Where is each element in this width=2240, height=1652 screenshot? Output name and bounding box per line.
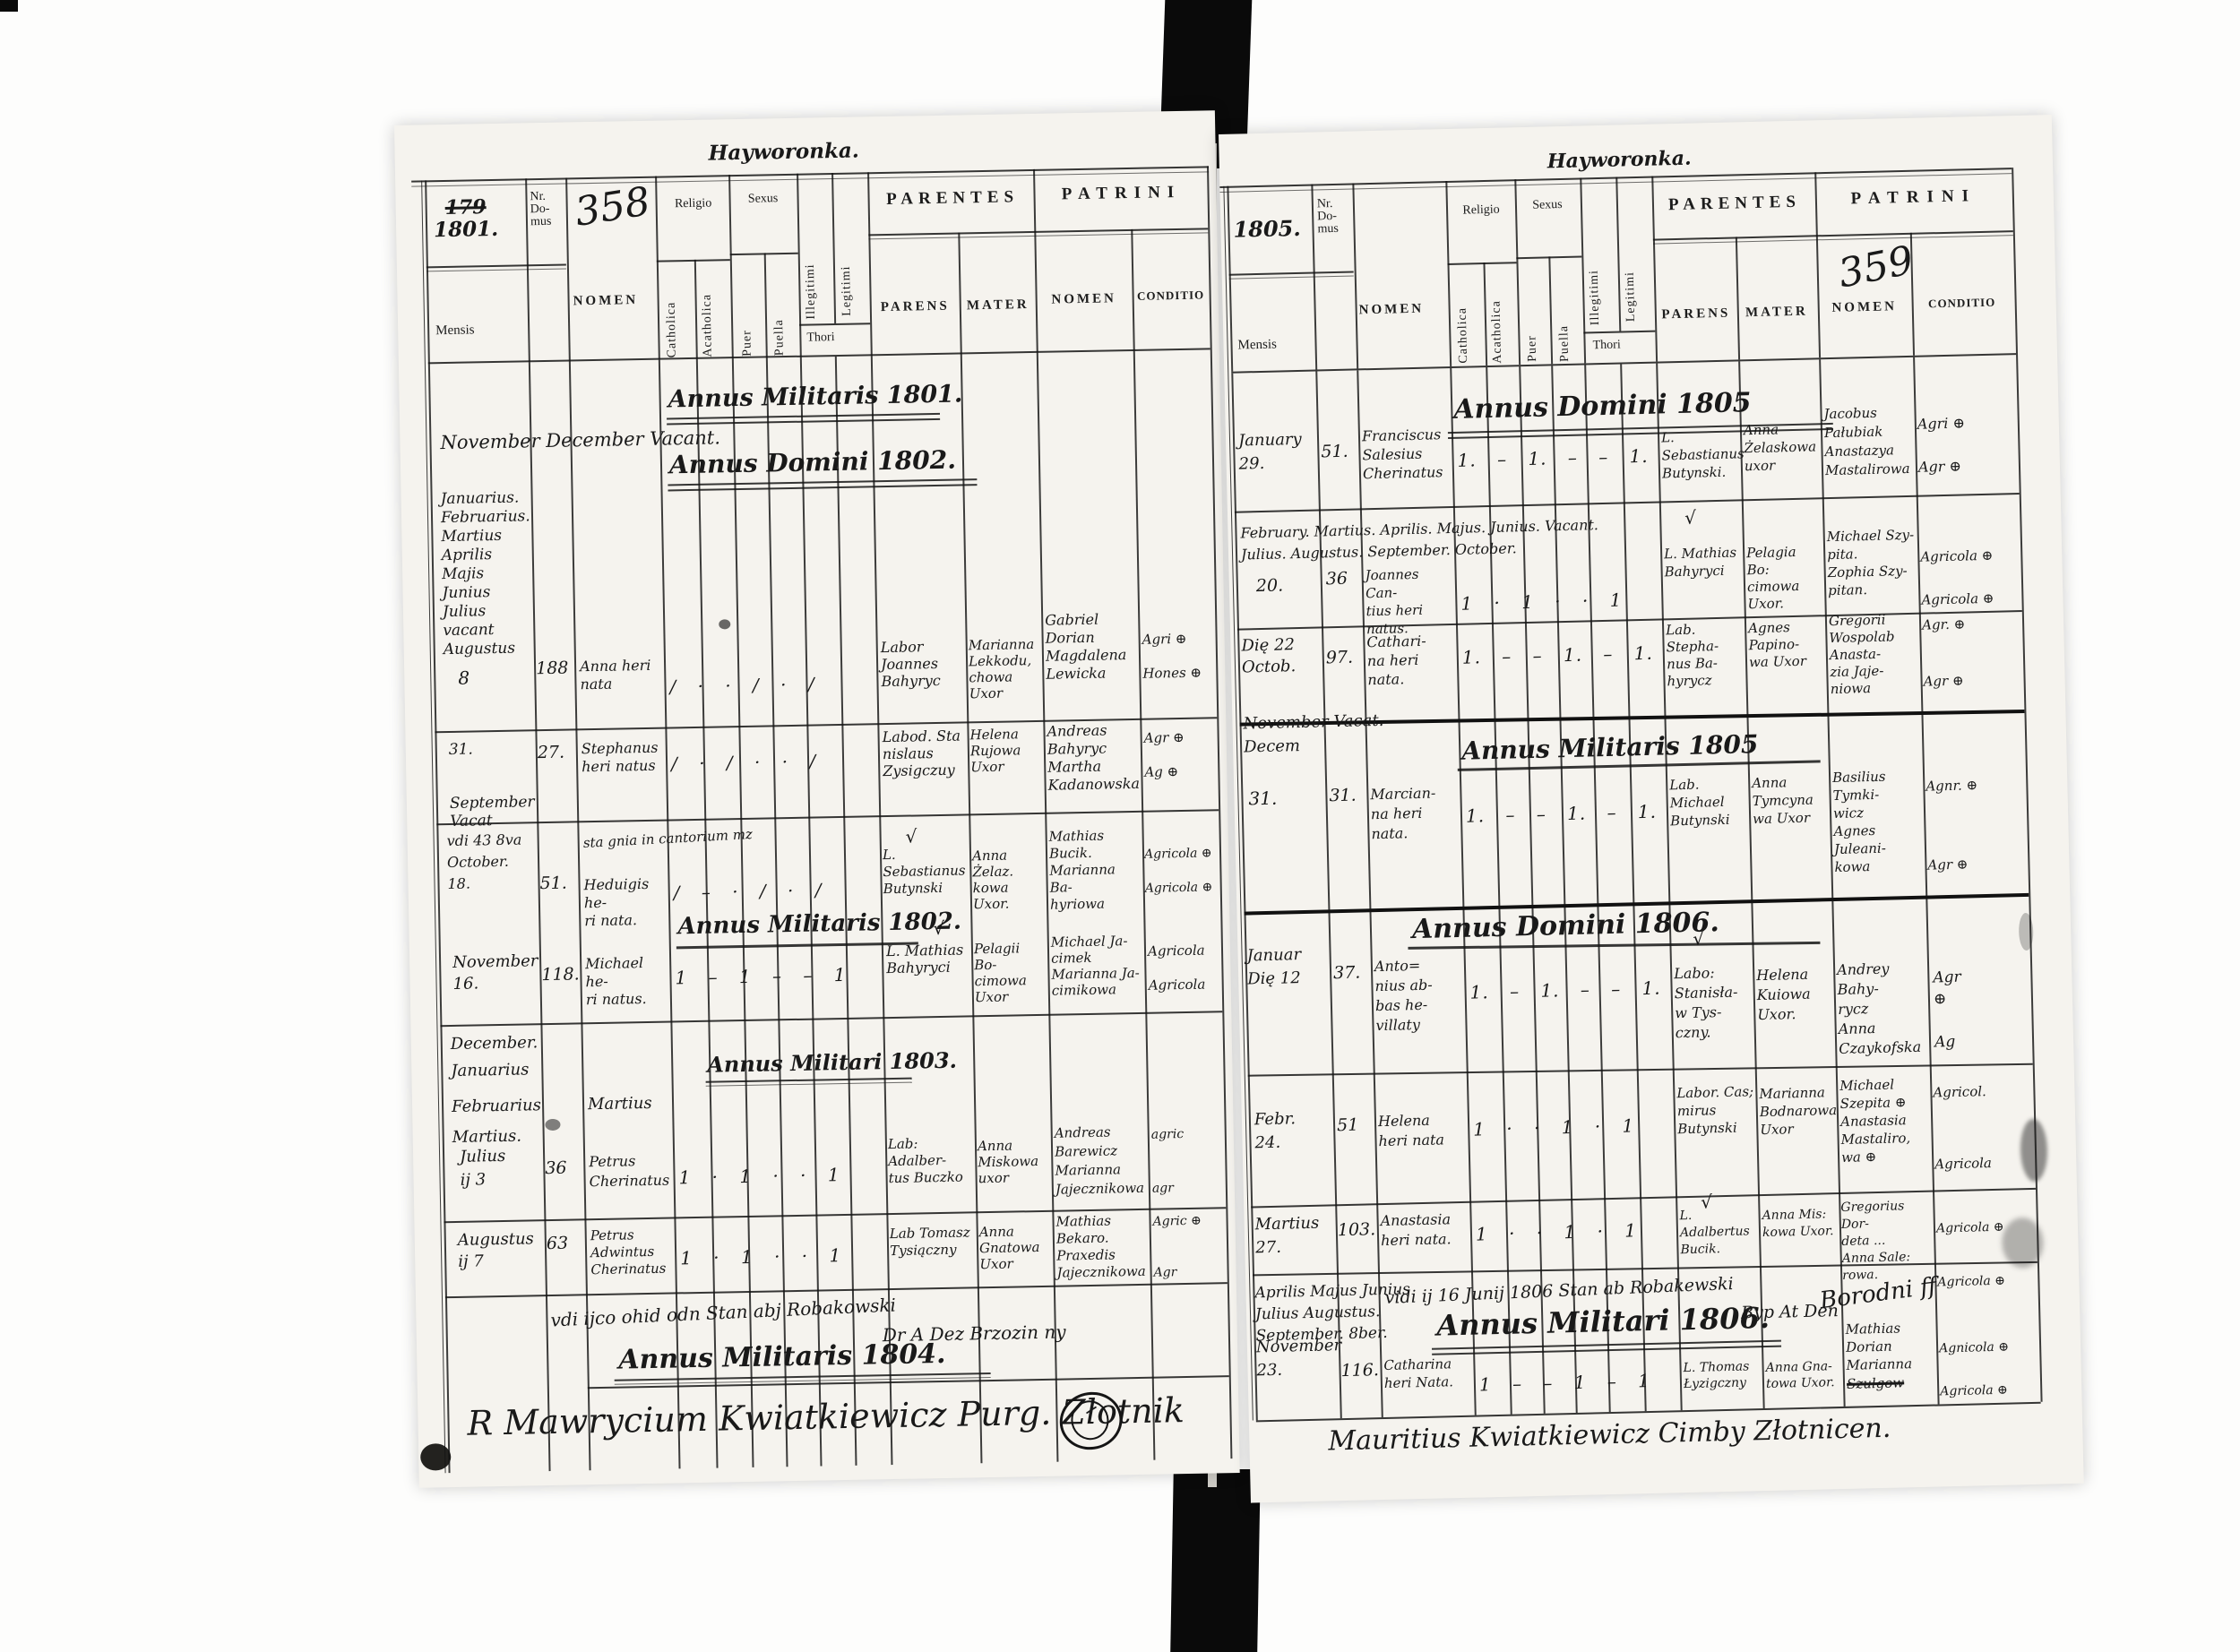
parens-header: PARENS <box>873 299 958 316</box>
entry-nomen: Anto= nius ab- bas he- villaty <box>1374 955 1464 1036</box>
check-mark: √ <box>933 917 944 939</box>
entry-patrini: Michael Szy- pita. Zophia Szy- pitan. <box>1827 526 1917 599</box>
month-list: Februarius <box>452 1096 541 1116</box>
page-number: 358 <box>572 178 653 236</box>
ink-stain <box>719 619 730 629</box>
entry-parens: L. Thomas Łyzigczny <box>1683 1358 1762 1392</box>
entry-parens: L. Sebastianus Butynski <box>883 845 970 898</box>
entry-patrini: Michael Ja- cimek Marianna Ja- cimikowa <box>1051 933 1143 999</box>
entry-parens: L. Mathias Bahyryci <box>1664 543 1744 581</box>
entry-ticks: ∕ · ∕ · · ∕ <box>671 749 877 774</box>
entry-patrini: Andrey Bahy- rycz Anna Czaykofska <box>1837 959 1927 1059</box>
puella-header: Puella <box>1556 295 1572 362</box>
entry-nomen: Anna heri nata <box>580 657 666 694</box>
entry-mater: Anna Miskowa uxor <box>978 1137 1050 1186</box>
grid-line <box>867 172 872 356</box>
conditio-header: CONDITIO <box>1132 288 1209 304</box>
entry-mensis: January 29. <box>1238 428 1315 477</box>
scan-corner-mark <box>0 0 18 12</box>
section-heading: Annus Domini 1802. <box>669 445 957 480</box>
patrini-header: PATRINI <box>1819 185 2009 210</box>
entry-conditio: Agr ⊕ Ag ⊕ <box>1144 728 1219 780</box>
grid-line <box>1651 176 1657 362</box>
acatholica-header: Acatholica <box>700 264 716 357</box>
section-heading: Annus Militari 1806. <box>1436 1301 1770 1343</box>
entry-conditio: Agric ⊕ Agr <box>1152 1212 1227 1281</box>
year-label: 1805. <box>1233 215 1301 243</box>
entry-patrini: Mathias Bekaro. Praxedis Jajecznikowa <box>1055 1212 1148 1282</box>
entry-mater: Marianna Lekkodu, chowa Uxor <box>969 636 1041 701</box>
patrini-nomen-header: NOMEN <box>1820 299 1909 316</box>
nomen-header: NOMEN <box>573 293 638 309</box>
section-heading: Annus Militaris 1804. <box>618 1338 946 1376</box>
entry-nomen: Cathari- na heri nata. <box>1366 631 1455 689</box>
section-heading: Annus Domini 1805 <box>1453 387 1752 426</box>
mater-header: MATER <box>1739 304 1814 321</box>
grid-line <box>440 1011 1222 1027</box>
heading-underline <box>667 418 940 426</box>
entry-conditio: Agricola ⊕ Agricola ⊕ <box>1144 845 1220 898</box>
entry-nomen: Petrus Adwintus Cherinatus <box>590 1226 676 1278</box>
entry-patrini: Mathias Bucik. Marianna Ba- hyriowa <box>1049 827 1142 914</box>
entry-ticks: 1. – – 1. – 1. <box>1466 800 1666 826</box>
month-list: December. Januarius <box>451 1029 539 1085</box>
illegitimi-header: Illegitimi <box>803 198 819 319</box>
scanned-register-spread: { "colors": {"ink": "#1c1c1c", "paper": … <box>0 0 2240 1652</box>
entry-ticks: ∕ – · ∕ · ∕ <box>674 878 880 903</box>
grid-line <box>1229 275 1354 279</box>
page-number: 359 <box>1834 237 1917 297</box>
book-spine-bottom <box>1170 1469 1261 1652</box>
entry-ticks: 1 – – 1 – 1 <box>1479 1369 1679 1395</box>
section-heading: Annus Domini 1806. <box>1412 907 1720 945</box>
entry-nomen: Marcian- na heri nata. <box>1370 783 1460 844</box>
thori-header: Thori <box>1592 338 1620 353</box>
entry-ticks: 1 – 1 – – 1 <box>675 963 881 988</box>
entry-nomen: Petrus Cherinatus <box>589 1150 675 1192</box>
entry-ticks: 1 · · 1 · 1 <box>1476 1218 1676 1244</box>
grid-line <box>1447 262 1516 265</box>
grid-line <box>428 348 1210 364</box>
entry-mensis: Martius 27. <box>1254 1211 1334 1260</box>
entry-patrini-struck: Szulgow <box>1847 1374 1905 1392</box>
entry-nr: 27. <box>538 743 565 763</box>
entry-patrini: Gregorii Wospolab Anasta- zia Jaje- niow… <box>1829 611 1918 698</box>
grid-line <box>425 180 429 364</box>
check-mark: √ <box>905 825 917 847</box>
grid-line <box>426 264 566 269</box>
struck-year: 179 <box>444 195 486 219</box>
entry-parens: Lab: Adalber- tus Buczko <box>888 1134 976 1187</box>
entry-mensis: 8 <box>458 667 470 689</box>
religio-header: Religio <box>661 196 726 211</box>
legitimi-header: Legitimi <box>839 200 855 316</box>
entry-nr: 51. <box>539 873 567 894</box>
section-heading: Annus Militaris 1802. <box>677 908 961 941</box>
parentes-header: PARENTES <box>874 187 1030 210</box>
entry-mater: Pelagia Bo: cimowa Uxor. <box>1746 543 1822 613</box>
entry-parens: Labor Joannes Bahyryc <box>881 637 967 690</box>
entry-ticks: 1 · · 1 · 1 <box>1473 1114 1673 1140</box>
entry-conditio: Agricol. Agricola <box>1933 1081 2029 1173</box>
entry-patrini: Gabriel Dorian Magdalena Lewicka <box>1045 610 1137 684</box>
grid-line <box>1580 177 1585 363</box>
grid-line <box>525 178 530 362</box>
entry-mater: Helena Rujowa Uxor <box>969 726 1042 775</box>
entry-mater: Anna Gnatowa Uxor <box>979 1223 1052 1272</box>
entry-patrini: Jacobus Pałubiak Anastazya Mastalirowa <box>1823 403 1913 480</box>
catholica-header: Catholica <box>1455 273 1471 363</box>
mensis-header: Mensis <box>1237 338 1277 354</box>
nr-domus-header: Nr. Do- mus <box>1317 198 1339 237</box>
grid-line <box>1548 256 1552 364</box>
entry-mater: Anna Gna- towa Uxor. <box>1765 1358 1839 1392</box>
entry-parens: Labo: Stanisła- w Tys- czny. <box>1674 962 1754 1043</box>
nr-domus-header: Nr. Do- mus <box>530 191 551 228</box>
entry-conditio: Agri ⊕ Hones ⊕ <box>1142 630 1216 682</box>
entry-nr: 118. <box>541 964 580 985</box>
entry-nr: 37. <box>1333 963 1361 984</box>
entry-ticks: ∕ · · ∕ · ∕ <box>669 672 875 697</box>
section-heading: Annus Militari 1803. <box>707 1047 957 1078</box>
ink-stain <box>2019 913 2034 951</box>
entry-nomen: Helena heri nata <box>1378 1110 1467 1151</box>
grid-line <box>958 232 961 354</box>
entry-mater: Anna Tymcyna wa Uxor <box>1752 772 1826 828</box>
patrini-nomen-header: NOMEN <box>1038 291 1131 308</box>
entry-nr: 51. <box>1321 442 1348 462</box>
heading-underline <box>706 1082 912 1087</box>
puer-header: Puer <box>740 294 755 357</box>
entry-ticks: 1 · 1 · · 1 <box>1460 589 1660 615</box>
entry-patrini: Michael Szepita ⊕ Anastasia Mastaliro, w… <box>1839 1075 1929 1166</box>
entry-conditio: Agri ⊕ Agr ⊕ <box>1917 411 2014 478</box>
entry-nomen: Catharina heri Nata. <box>1383 1355 1472 1392</box>
entry-nr: 103. <box>1338 1219 1376 1240</box>
thori-header: Thori <box>806 331 834 346</box>
entry-mensis: 31. <box>1248 787 1277 810</box>
entry-conditio: Agnicola ⊕ Agricola ⊕ <box>1939 1336 2036 1402</box>
entry-parens: L. Adalbertus Bucik. <box>1679 1206 1761 1259</box>
parentes-header: PARENTES <box>1658 192 1812 215</box>
illegitimi-header: Illegitimi <box>1586 204 1603 325</box>
grid-line <box>1615 177 1621 331</box>
entry-conditio: Agnr. ⊕ Agr ⊕ <box>1926 774 2023 874</box>
puer-header: Puer <box>1524 299 1540 362</box>
entry-conditio: Agricola ⊕ Agricola ⊕ <box>1920 544 2017 610</box>
month-list: Martius. <box>452 1127 522 1147</box>
entry-nomen: Stephanus heri natus <box>582 739 668 777</box>
entry-nomen: Heduigis he- ri nata. <box>583 875 669 931</box>
entry-mater: Anna Mis: kowa Uxor. <box>1762 1206 1836 1242</box>
section-heading: Annus Militaris 1801. <box>668 380 962 413</box>
entry-ticks: 1. – – 1. – 1. <box>1462 642 1662 668</box>
entry-patrini: Basilius Tymki- wicz Agnes Juleani- kowa <box>1832 767 1923 876</box>
register-right-page: Hayworonka. 1805. Nr. Do- mus Mensis NOM… <box>1219 115 2084 1502</box>
entry-ticks: 1. – 1. – – 1. <box>1457 445 1657 471</box>
grid-line <box>426 269 566 272</box>
grid-line <box>764 253 768 357</box>
entry-patrini: Andreas Barewicz Marianna Jajecznikowa <box>1055 1123 1148 1200</box>
entry-nomen: Anastasia heri nata. <box>1380 1209 1469 1251</box>
grid-line <box>1231 353 2016 374</box>
entry-nr: 63 <box>547 1234 569 1253</box>
entry-mensis: Febr. 24. <box>1254 1106 1331 1155</box>
entry-mater: Helena Kuiowa Uxor. <box>1756 964 1831 1025</box>
entry-nr: 36 <box>545 1158 567 1178</box>
entry-conditio: Agr. ⊕ Agr ⊕ <box>1922 614 2019 691</box>
entry-patrini: Mathias Dorian Marianna <box>1845 1319 1934 1374</box>
entry-patrini: Gregorius Dor- deta ... Anna Sale: rowa. <box>1840 1198 1932 1285</box>
entry-mater: Marianna Bodnarowa Uxor <box>1759 1083 1833 1139</box>
entry-nr: 116. <box>1340 1360 1379 1381</box>
month-list: Januarius. Februarius. Martius Aprilis M… <box>440 488 532 659</box>
entry-parens: L. Sebastianus Butynski. <box>1661 426 1741 482</box>
entry-parens: Lab Tomasz Tysiączny <box>890 1224 978 1260</box>
check-mark: √ <box>1693 927 1704 949</box>
religio-header: Religio <box>1450 202 1512 219</box>
entry-patrini: Andreas Bahyryc Martha Kadanowska <box>1047 721 1139 795</box>
sexus-header: Sexus <box>732 192 793 207</box>
entry-nomen: Franciscus Salesius Cherinatus <box>1362 425 1451 483</box>
entry-parens: Lab. Stepha- nus Ba- hyrycz <box>1666 620 1746 690</box>
month-note: November Vacat. <box>1243 710 1440 733</box>
entry-mater: Anna Żelaz. kowa Uxor. <box>972 847 1045 912</box>
month-note: Martius <box>588 1094 652 1114</box>
grid-line <box>529 362 550 1471</box>
entry-mensis: Januar Dię 12 <box>1246 942 1328 991</box>
page-corner-shadow <box>420 1443 452 1471</box>
month-note: Decem <box>1244 736 1300 756</box>
entry-conditio: Agricola ⊕ Agricola ⊕ <box>1936 1213 2033 1295</box>
grid-line <box>797 174 801 357</box>
entry-parens: Labod. Sta nislaus Zysigczuy <box>882 727 968 779</box>
entry-mater: Anna Żelaskowa uxor <box>1744 419 1818 475</box>
priest-signature: Mauritius Kwiatkiewicz Cimby Złotnicen. <box>1328 1413 1891 1458</box>
entry-mater: Pelagii Bo- cimowa Uxor <box>974 940 1047 1005</box>
mensis-header: Mensis <box>435 323 475 339</box>
ink-stain <box>545 1119 560 1131</box>
entry-note: sta gnia in cantorium mz <box>582 819 878 851</box>
sexus-header: Sexus <box>1518 198 1577 214</box>
grid-line <box>1235 493 2020 513</box>
entry-ticks: 1 · 1 · · 1 <box>678 1163 884 1188</box>
year-label: 1801. <box>434 217 499 242</box>
legitimi-header: Legitimi <box>1622 205 1639 322</box>
grid-line <box>831 173 836 323</box>
entry-parens: Labor. Cas; mirus Butynski <box>1676 1082 1756 1138</box>
entry-nomen: Michael he- ri natus. <box>585 954 671 1010</box>
page-running-title: Hayworonka. <box>1547 147 1692 174</box>
entry-conditio: agric agr <box>1151 1124 1226 1197</box>
entry-ticks: 1. – 1. – – 1. <box>1469 977 1669 1002</box>
grid-line <box>694 260 698 359</box>
puella-header: Puella <box>771 288 787 356</box>
entry-nr: 188 <box>536 658 569 679</box>
grid-line <box>565 177 570 361</box>
entry-mensis: November 23. <box>1256 1334 1338 1382</box>
entry-nr: 97. <box>1326 648 1354 668</box>
conditio-header: CONDITIO <box>1912 295 2011 312</box>
entry-nomen: Joannes Can- tius heri natus. <box>1365 564 1454 638</box>
grid-line <box>1736 237 1740 359</box>
entry-conditio: Agr ⊕ Ag <box>1933 965 2024 1053</box>
entry-ticks: 1 · 1 · · 1 <box>680 1243 886 1269</box>
parens-header: PARENS <box>1657 305 1736 323</box>
grid-line <box>421 180 445 1473</box>
entry-nr: 31. <box>1329 786 1357 806</box>
nomen-header: NOMEN <box>1358 302 1424 319</box>
entry-nr: 51 <box>1337 1115 1359 1136</box>
grid-line <box>1483 262 1486 366</box>
entry-parens: Lab. Michael Butynski <box>1669 774 1749 830</box>
month-note: Julius. Augustus. September. October. <box>1241 538 1599 563</box>
acatholica-header: Acatholica <box>1489 270 1505 364</box>
entry-mater: Agnes Papino- wa Uxor <box>1748 618 1822 671</box>
entry-nr: 36 <box>1325 569 1348 589</box>
section-heading: Annus Militaris 1805 <box>1461 729 1759 766</box>
page-running-title: Hayworonka. <box>708 139 859 166</box>
entry-mensis: 20. <box>1256 575 1284 596</box>
catholica-header: Catholica <box>664 268 680 357</box>
entry-mensis: Dię 22 Octob. <box>1241 633 1321 678</box>
mater-header: MATER <box>962 297 1034 314</box>
patrini-header: PATRINI <box>1037 182 1205 204</box>
entry-conditio: Agricola Agricola <box>1148 942 1222 994</box>
register-left-page: Hayworonka. 179 1801. Nr. Do- mus 358 Me… <box>394 110 1240 1488</box>
entry-parens: L. Mathias Bahyryci <box>886 941 972 977</box>
check-mark: √ <box>1684 507 1696 529</box>
grid-line <box>655 176 659 360</box>
